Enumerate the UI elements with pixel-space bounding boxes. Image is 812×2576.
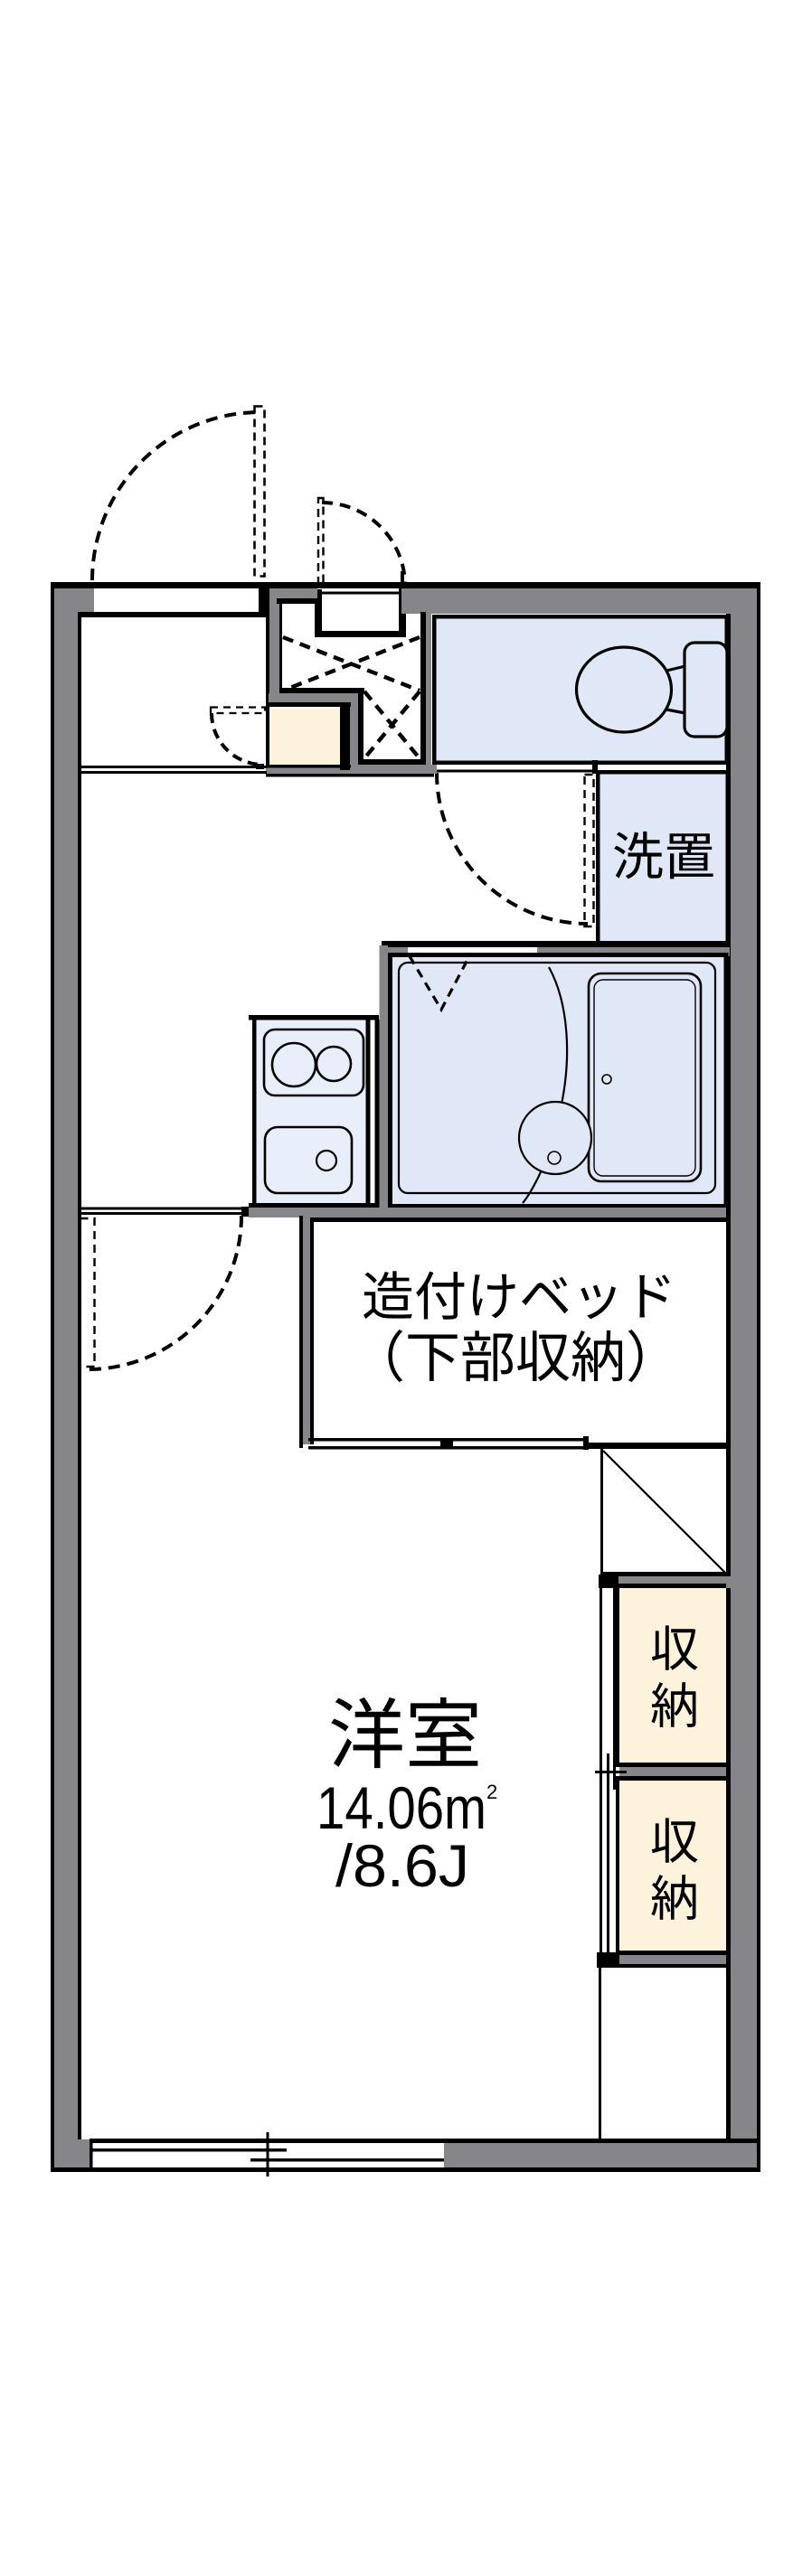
svg-text:14.06m: 14.06m xyxy=(316,1774,486,1841)
svg-text:/8.6J: /8.6J xyxy=(335,1832,469,1899)
svg-text:2: 2 xyxy=(486,1781,497,1803)
